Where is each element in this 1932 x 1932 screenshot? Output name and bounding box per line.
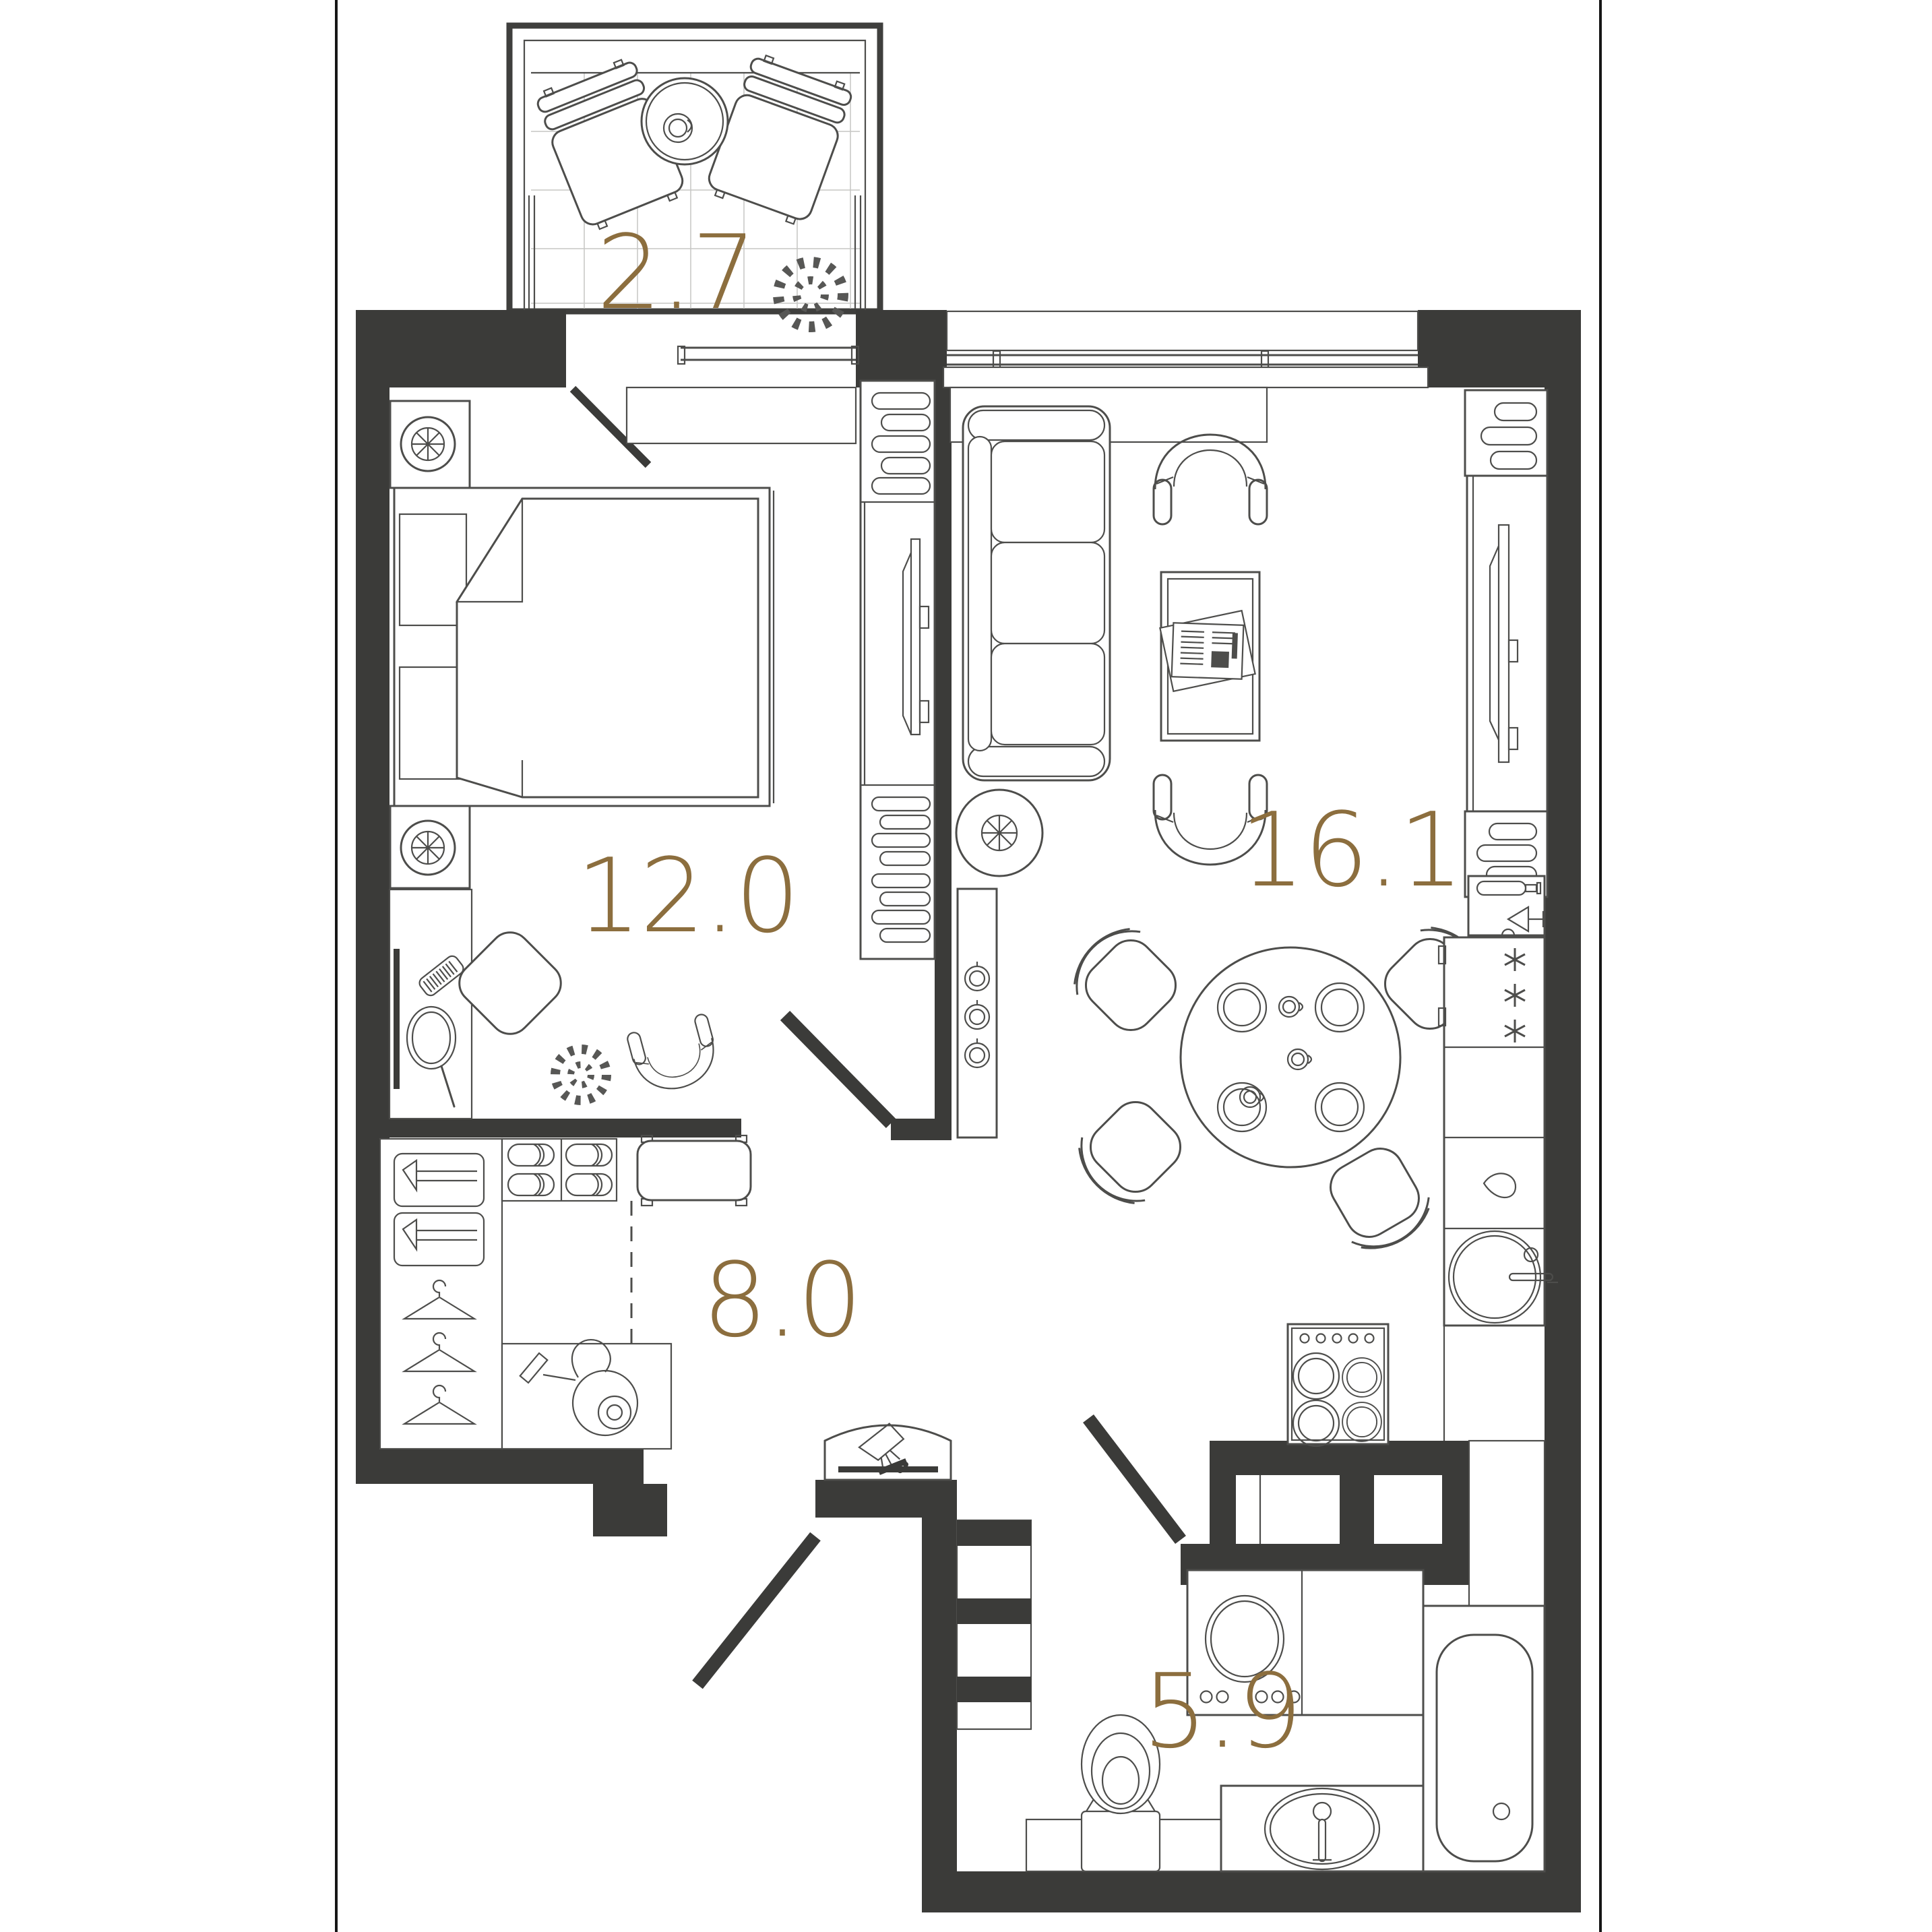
kitchen-counter (1439, 937, 1558, 1441)
wall-mirror (394, 949, 400, 1089)
dining-chair (1065, 1088, 1194, 1217)
bottom-wall (922, 1871, 1581, 1912)
radiator-panel (958, 889, 997, 1138)
bathroom-post-b (1340, 1475, 1374, 1544)
bedroom-door-leaf (785, 1016, 891, 1123)
hob (1288, 1324, 1388, 1446)
floor-plan-page: 2.7 12.0 16.1 8.0 5.9 (0, 0, 1932, 1932)
bathroom-niche (1469, 1441, 1545, 1606)
balcony-area-label: 2.7 (596, 222, 755, 324)
entry-door-leaf (697, 1536, 815, 1685)
hallway-area-label: 8.0 (702, 1249, 861, 1352)
wardrobe (380, 1139, 671, 1449)
entry-notch (644, 1484, 667, 1536)
hallway (380, 1135, 951, 1485)
bathroom-top-band (1210, 1441, 1469, 1475)
hall-bottom-wall (356, 1449, 593, 1484)
bedroom-shelving-cabinet (861, 381, 935, 959)
floor-plan-drawing (0, 0, 1932, 1932)
vanity-table (389, 890, 472, 1119)
top-wall-c (1418, 310, 1581, 387)
bed-duvet (457, 499, 758, 797)
bedroom-window-sill (627, 387, 856, 443)
entry-header-wall (815, 1480, 957, 1518)
shoe-bench (637, 1135, 751, 1206)
bedroom-bottom-wall (389, 1119, 741, 1138)
kitchen-tv-cabinet (1467, 476, 1547, 811)
coffee-table (1160, 572, 1259, 741)
balcony-plant (778, 262, 843, 327)
dining-table (1181, 947, 1400, 1167)
bathroom-left-wall (922, 1518, 957, 1871)
armchair-top (1154, 435, 1267, 524)
kitchen (1288, 390, 1558, 1446)
bathroom-area-label: 5.9 (1142, 1660, 1301, 1763)
bedroom-chair (626, 1013, 723, 1098)
bathroom-sink (1221, 1786, 1423, 1871)
bedroom-living-divider-wall (935, 387, 952, 1123)
balcony-table (642, 78, 728, 164)
bathtub (1423, 1606, 1545, 1871)
bedroom (389, 381, 935, 1119)
top-wall-b (856, 310, 947, 387)
bedroom-window (627, 346, 859, 443)
dining-chair (1061, 915, 1189, 1044)
balcony-lounge-chair-right (704, 51, 856, 228)
page-border-left (335, 0, 338, 1932)
duct-shaft (957, 1520, 1031, 1729)
bedroom-plant (555, 1049, 606, 1100)
bathroom-post-a (1210, 1475, 1236, 1544)
dining-set (1061, 914, 1499, 1261)
right-wall (1545, 387, 1581, 1912)
kitchen-shelf-top (1465, 390, 1547, 476)
bathroom-post-c (1442, 1475, 1469, 1544)
floor-lamp-icon (956, 790, 1042, 876)
divider-stub (891, 1119, 952, 1140)
hall-step-wall (593, 1449, 644, 1536)
living-area-label: 16.1 (1240, 799, 1462, 902)
living-window-sill (943, 367, 1428, 387)
sofa (963, 406, 1110, 780)
entry-lamp (825, 1421, 951, 1485)
page-border-right (1599, 0, 1602, 1932)
bathroom-door-leaf (1088, 1419, 1181, 1540)
wine-shelf (1468, 876, 1545, 941)
bedroom-area-label: 12.0 (576, 845, 799, 947)
